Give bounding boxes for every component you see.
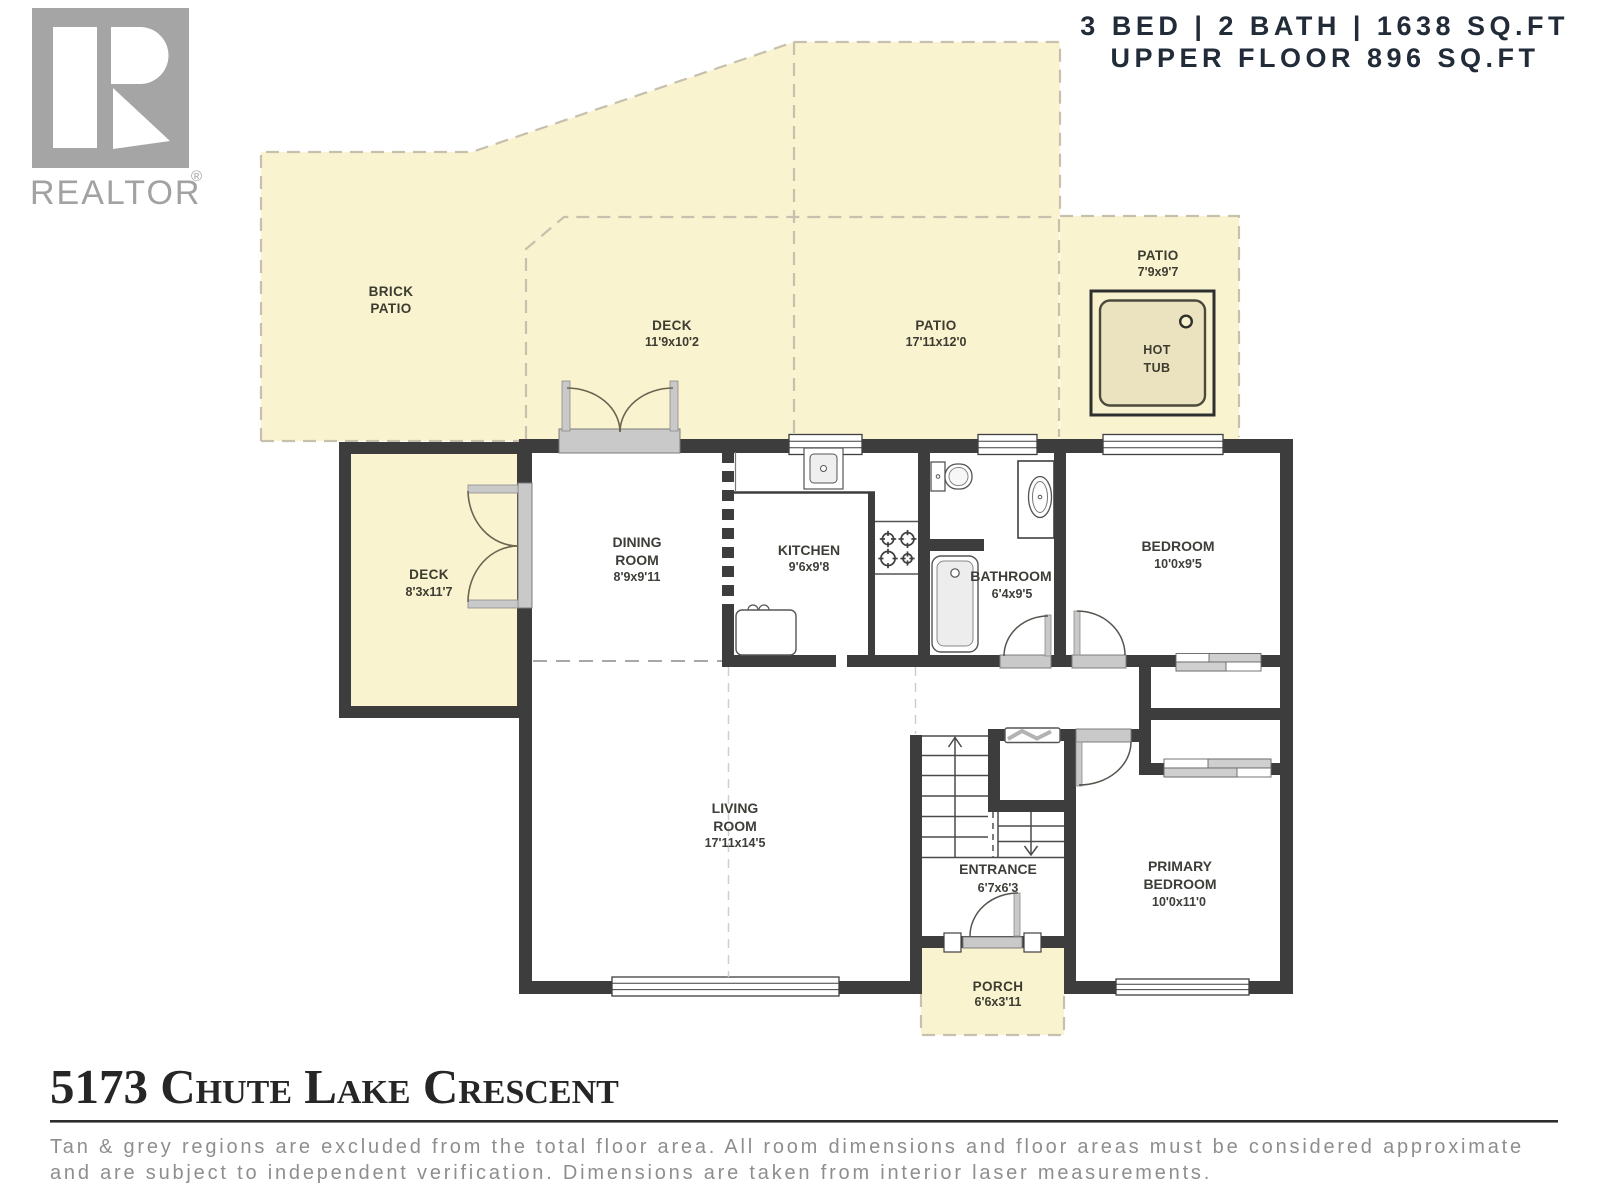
svg-text:and are subject to independent: and are subject to independent verificat… bbox=[50, 1162, 1212, 1184]
svg-text:PATIO: PATIO bbox=[1137, 248, 1178, 263]
svg-text:BEDROOM: BEDROOM bbox=[1141, 538, 1214, 554]
svg-text:10'0x9'5: 10'0x9'5 bbox=[1154, 557, 1202, 571]
svg-text:DECK: DECK bbox=[652, 318, 692, 333]
svg-text:HOT: HOT bbox=[1143, 343, 1171, 357]
svg-text:17'11x12'0: 17'11x12'0 bbox=[906, 335, 967, 349]
svg-text:®: ® bbox=[191, 168, 202, 185]
svg-text:Tan & grey regions are exclude: Tan & grey regions are excluded from the… bbox=[50, 1136, 1524, 1158]
svg-text:11'9x10'2: 11'9x10'2 bbox=[645, 335, 699, 349]
svg-text:5173 Chute Lake Crescent: 5173 Chute Lake Crescent bbox=[50, 1059, 619, 1114]
svg-text:8'9x9'11: 8'9x9'11 bbox=[614, 570, 661, 584]
svg-text:6'7x6'3: 6'7x6'3 bbox=[978, 881, 1019, 895]
svg-text:PORCH: PORCH bbox=[973, 979, 1024, 994]
svg-text:REALTOR: REALTOR bbox=[30, 174, 201, 212]
svg-text:LIVING: LIVING bbox=[712, 800, 759, 816]
svg-text:TUB: TUB bbox=[1144, 361, 1171, 375]
svg-text:10'0x11'0: 10'0x11'0 bbox=[1152, 895, 1206, 909]
svg-text:BEDROOM: BEDROOM bbox=[1143, 876, 1216, 892]
svg-text:ENTRANCE: ENTRANCE bbox=[959, 861, 1037, 877]
svg-text:PRIMARY: PRIMARY bbox=[1148, 858, 1213, 874]
svg-text:PATIO: PATIO bbox=[915, 318, 956, 333]
svg-text:6'4x9'5: 6'4x9'5 bbox=[992, 587, 1033, 601]
svg-text:BATHROOM: BATHROOM bbox=[970, 568, 1051, 584]
svg-text:ROOM: ROOM bbox=[713, 818, 757, 834]
svg-text:DINING: DINING bbox=[613, 534, 662, 550]
svg-text:7'9x9'7: 7'9x9'7 bbox=[1138, 265, 1179, 279]
svg-text:8'3x11'7: 8'3x11'7 bbox=[406, 585, 453, 599]
svg-text:UPPER FLOOR 896 SQ.FT: UPPER FLOOR 896 SQ.FT bbox=[1110, 43, 1539, 73]
svg-text:ROOM: ROOM bbox=[615, 552, 659, 568]
svg-text:DECK: DECK bbox=[409, 567, 449, 582]
svg-text:9'6x9'8: 9'6x9'8 bbox=[789, 560, 830, 574]
svg-text:17'11x14'5: 17'11x14'5 bbox=[705, 836, 766, 850]
svg-text:6'6x3'11: 6'6x3'11 bbox=[975, 995, 1022, 1009]
svg-text:3 BED | 2 BATH | 1638 SQ.FT: 3 BED | 2 BATH | 1638 SQ.FT bbox=[1080, 11, 1569, 41]
svg-text:BRICK: BRICK bbox=[369, 284, 414, 299]
svg-text:KITCHEN: KITCHEN bbox=[778, 542, 840, 558]
svg-text:PATIO: PATIO bbox=[370, 301, 411, 316]
